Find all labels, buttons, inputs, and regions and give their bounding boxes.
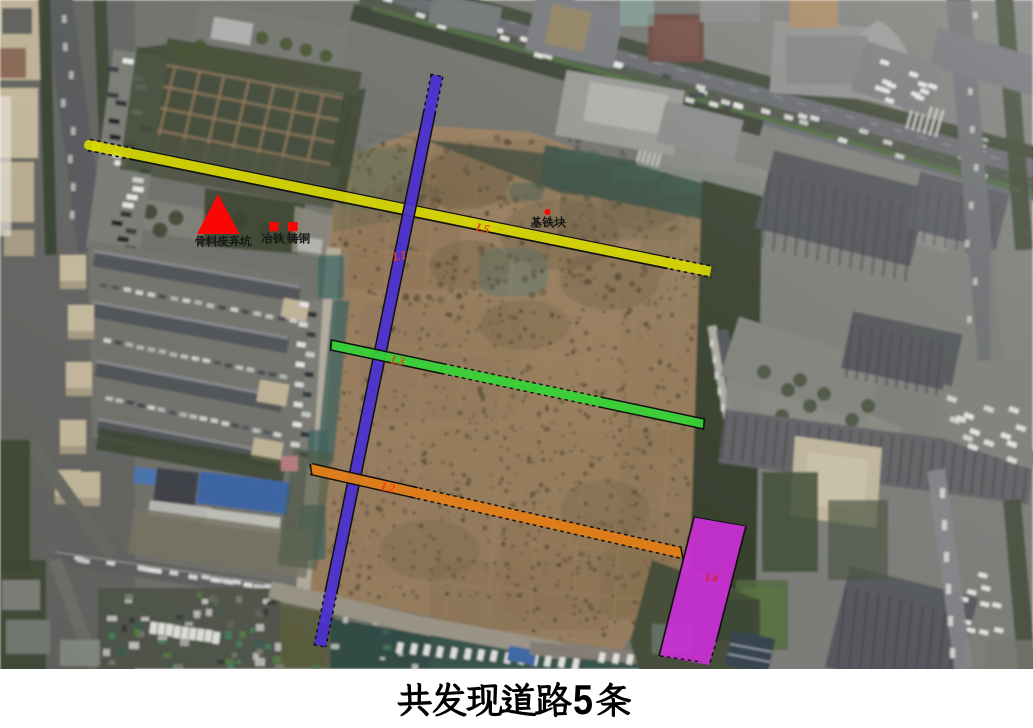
svg-text:5: 5 [573, 676, 593, 723]
svg-text:L5: L5 [473, 220, 490, 237]
svg-text:L4: L4 [703, 571, 719, 585]
svg-text:L1: L1 [391, 248, 408, 264]
